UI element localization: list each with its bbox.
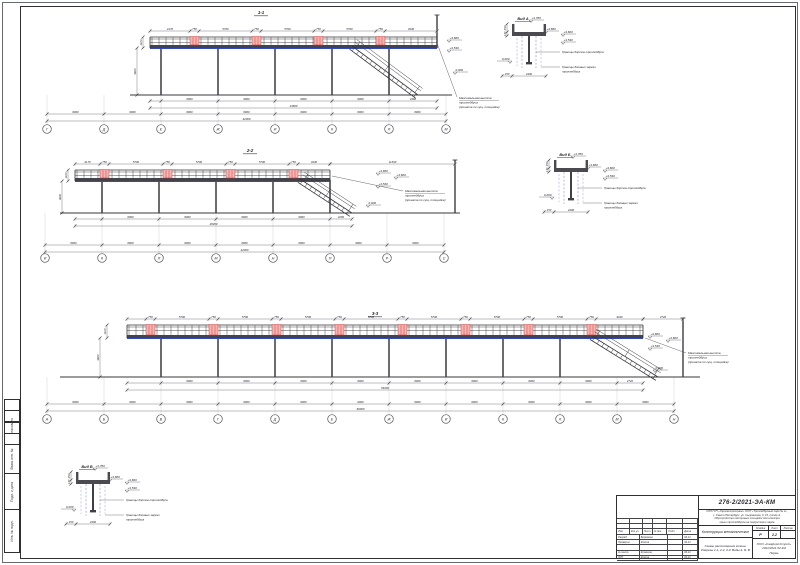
svg-text:1100: 1100 (64, 172, 68, 178)
svg-text:троллейбуса: троллейбуса (459, 100, 478, 104)
svg-text:6000: 6000 (300, 400, 307, 404)
strip-cell-2: Согласовано (4, 422, 20, 434)
svg-text:+3,680: +3,680 (450, 36, 460, 40)
svg-text:250: 250 (67, 473, 71, 479)
svg-text:750: 750 (291, 160, 296, 164)
sig-cell: ГИП (617, 556, 640, 561)
strip-cell-4: Взам. инв. № (4, 444, 20, 474)
svg-text:0,000: 0,000 (656, 366, 664, 370)
svg-text:11540: 11540 (389, 160, 397, 164)
svg-text:2400: 2400 (567, 208, 575, 212)
svg-text:4170: 4170 (167, 27, 174, 31)
svg-text:5700: 5700 (222, 27, 229, 31)
svg-text:+3,530: +3,530 (379, 182, 389, 186)
svg-text:С: С (443, 256, 446, 260)
strip-cell-6: Инв. № подл. (4, 509, 20, 553)
object-description: СПб ГУП «Горэлектротранс» ОСП «Троллейбу… (699, 509, 795, 526)
svg-text:+3,600: +3,600 (397, 173, 407, 177)
svg-text:6000: 6000 (243, 110, 250, 114)
svg-text:Границы боковых зеркал: Границы боковых зеркал (604, 201, 638, 205)
svg-text:6000: 6000 (184, 215, 191, 219)
svg-text:5700: 5700 (284, 27, 291, 31)
svg-text:Границы бортов троллейбуса: Границы бортов троллейбуса (126, 498, 168, 502)
svg-text:0,000: 0,000 (544, 193, 552, 197)
svg-text:6000: 6000 (357, 110, 364, 114)
svg-text:0,000: 0,000 (502, 57, 510, 61)
view-1-1: 4170750570075057007505700750344060006000… (43, 10, 500, 133)
detail-vid-b: Вид Б+4,780+3,680+3,600+3,5300,000Границ… (539, 152, 646, 214)
change-table-empty (617, 496, 698, 519)
svg-text:(принята по сущ. площадке): (принята по сущ. площадке) (688, 360, 729, 364)
svg-text:250: 250 (503, 25, 507, 31)
svg-text:Вид А: Вид А (517, 17, 528, 21)
svg-text:4360: 4360 (410, 97, 417, 101)
strip-label: Инв. № подл. (10, 521, 14, 542)
sheet-title: Схемы расположения колонн. Разрезы 1-1, … (699, 538, 753, 558)
svg-text:750: 750 (378, 27, 383, 31)
svg-text:+3,680: +3,680 (651, 332, 661, 336)
svg-text:М: М (215, 256, 218, 260)
svg-text:6000: 6000 (585, 379, 592, 383)
svg-text:3-3: 3-3 (372, 311, 379, 316)
svg-text:6000: 6000 (72, 110, 79, 114)
svg-text:Вид Б: Вид Б (559, 153, 570, 157)
svg-text:А: А (45, 417, 49, 421)
svg-text:6000: 6000 (355, 241, 362, 245)
svg-text:750: 750 (165, 160, 170, 164)
svg-text:6000: 6000 (127, 241, 134, 245)
svg-text:6000: 6000 (357, 379, 364, 383)
svg-text:Л: Л (157, 256, 161, 260)
svg-text:6000: 6000 (471, 400, 478, 404)
svg-text:5700: 5700 (494, 315, 501, 319)
svg-text:Вид В: Вид В (81, 465, 92, 469)
svg-text:+4,780: +4,780 (96, 464, 106, 468)
svg-text:6000: 6000 (243, 97, 250, 101)
svg-text:троллейбуса: троллейбуса (604, 206, 622, 210)
svg-text:750: 750 (254, 27, 259, 31)
svg-text:6000: 6000 (585, 400, 592, 404)
svg-text:М: М (616, 417, 619, 421)
svg-text:+3,680: +3,680 (379, 169, 389, 173)
svg-text:6000: 6000 (357, 400, 364, 404)
svg-text:Л: Л (558, 417, 562, 421)
title-block: Изм.Кол.уч.Лист№ док.Подп.ДатаРазраб.Бер… (616, 495, 796, 559)
svg-text:+3,530: +3,530 (564, 38, 574, 42)
svg-text:2400: 2400 (89, 520, 97, 524)
strip-label: Подп. и дата (10, 482, 14, 502)
sheets-total (781, 531, 795, 538)
stage-value: Р (753, 531, 769, 538)
svg-text:2720: 2720 (626, 379, 634, 383)
svg-text:(принята по сущ. площадке): (принята по сущ. площадке) (459, 105, 500, 109)
svg-text:троллейбуса: троллейбуса (562, 70, 580, 74)
svg-text:6000: 6000 (129, 110, 136, 114)
svg-text:5700: 5700 (431, 315, 438, 319)
svg-text:Л: Л (387, 127, 391, 131)
svg-text:6000: 6000 (186, 97, 193, 101)
svg-text:Границы бортов троллейбуса: Границы бортов троллейбуса (604, 186, 646, 190)
detail-vid-a: Вид А+4,780+3,680+3,600+3,5300,000Границ… (497, 16, 604, 78)
svg-text:5700: 5700 (557, 315, 564, 319)
svg-text:0,000: 0,000 (369, 201, 377, 205)
svg-text:6000: 6000 (298, 215, 305, 219)
strip-cell-3 (4, 433, 20, 445)
svg-text:750: 750 (274, 315, 279, 319)
svg-text:750: 750 (211, 315, 216, 319)
svg-text:0,000: 0,000 (456, 68, 464, 72)
svg-text:750: 750 (192, 27, 197, 31)
svg-text:+3,530: +3,530 (128, 486, 138, 490)
document-number: 276-2/2021-ЭА-КМ (699, 496, 795, 510)
svg-text:6000: 6000 (642, 400, 649, 404)
svg-text:150: 150 (505, 72, 510, 76)
svg-text:24600: 24600 (289, 104, 298, 108)
view-3-3: 7505700750570075057007505700750570075057… (43, 311, 729, 423)
svg-text:6000: 6000 (414, 400, 421, 404)
svg-text:170: 170 (67, 479, 71, 484)
svg-text:5700: 5700 (305, 315, 312, 319)
svg-text:И: И (445, 417, 448, 421)
strip-label: Взам. инв. № (10, 449, 14, 470)
svg-text:Д: Д (273, 417, 277, 421)
svg-text:750: 750 (463, 315, 468, 319)
svg-text:И: И (274, 127, 277, 131)
svg-text:+3,600: +3,600 (128, 478, 138, 482)
section-title: Конструкции металлические (699, 526, 753, 538)
svg-text:+3,600: +3,600 (606, 166, 616, 170)
svg-text:66000: 66000 (357, 407, 365, 411)
svg-text:6000: 6000 (129, 400, 136, 404)
svg-text:троллейбуса: троллейбуса (688, 355, 707, 359)
svg-text:+3,680: +3,680 (111, 475, 121, 479)
svg-text:М: М (445, 127, 448, 131)
svg-text:750: 750 (102, 160, 107, 164)
svg-text:42000: 42000 (243, 117, 251, 121)
svg-text:6000: 6000 (241, 241, 248, 245)
detail-vid-v: Вид В+4,780+3,680+3,600+3,5300,000Границ… (61, 464, 168, 526)
object-line: крыш троллейбусов на территории парка (699, 521, 795, 525)
svg-text:Границы боковых зеркал: Границы боковых зеркал (126, 513, 160, 517)
svg-text:троллейбуса: троллейбуса (405, 193, 424, 197)
svg-text:3600: 3600 (133, 68, 137, 75)
svg-text:Н: Н (673, 417, 676, 421)
svg-text:6000: 6000 (414, 379, 421, 383)
svg-text:Границы бортов троллейбуса: Границы бортов троллейбуса (562, 50, 604, 54)
svg-text:6000: 6000 (300, 97, 307, 101)
svg-text:2260: 2260 (337, 215, 345, 219)
svg-text:6000: 6000 (298, 241, 305, 245)
svg-text:(принята по сущ. площадке): (принята по сущ. площадке) (405, 198, 446, 202)
svg-text:+3,530: +3,530 (651, 344, 661, 348)
svg-text:П: П (329, 256, 332, 260)
svg-text:Н: Н (272, 256, 275, 260)
svg-text:6000: 6000 (243, 379, 250, 383)
svg-text:И: И (44, 256, 47, 260)
svg-text:+4,780: +4,780 (574, 152, 584, 156)
svg-text:750: 750 (228, 160, 233, 164)
svg-text:2-2: 2-2 (246, 148, 254, 153)
svg-text:4170: 4170 (84, 160, 91, 164)
svg-text:6000: 6000 (412, 241, 419, 245)
svg-text:6000: 6000 (300, 110, 307, 114)
svg-text:Максимальная высота: Максимальная высота (405, 189, 438, 193)
svg-text:6000: 6000 (300, 379, 307, 383)
svg-text:150: 150 (547, 208, 552, 212)
sig-cell: Козлов (640, 556, 669, 561)
company-cell: ООО «КомфортСтрой»2021/2021-52-4МПермь (753, 539, 795, 558)
frame-side-strip: СогласованоВзам. инв. №Подп. и датаИнв. … (4, 400, 20, 553)
svg-text:750: 750 (400, 315, 405, 319)
sig-cell (668, 556, 683, 561)
drawing-sheet: 4170750570075057007505700750344060006000… (0, 0, 800, 565)
svg-text:6000: 6000 (70, 241, 77, 245)
svg-text:5700: 5700 (179, 315, 186, 319)
svg-text:Границы боковых зеркал: Границы боковых зеркал (562, 65, 596, 69)
svg-text:6000: 6000 (357, 97, 364, 101)
svg-text:6000: 6000 (186, 379, 193, 383)
svg-text:Ж: Ж (215, 127, 220, 131)
sheet-number: 2.2 (769, 531, 781, 538)
svg-text:5700: 5700 (196, 160, 203, 164)
svg-text:6000: 6000 (186, 400, 193, 404)
svg-text:170: 170 (545, 167, 549, 172)
svg-text:3440: 3440 (616, 315, 623, 319)
svg-text:6000: 6000 (72, 400, 79, 404)
svg-text:1100: 1100 (139, 39, 143, 45)
svg-text:+3,680: +3,680 (547, 27, 557, 31)
company-line: Пермь (769, 551, 778, 555)
sig-cell: 04.21 (683, 556, 698, 561)
svg-text:150: 150 (69, 520, 74, 524)
svg-text:750: 750 (526, 315, 531, 319)
svg-text:+3,530: +3,530 (606, 174, 616, 178)
svg-text:750: 750 (337, 315, 342, 319)
svg-text:+3,600: +3,600 (564, 30, 574, 34)
svg-text:3600: 3600 (96, 354, 100, 361)
svg-text:троллейбуса: троллейбуса (126, 518, 144, 522)
svg-text:6000: 6000 (127, 215, 134, 219)
svg-text:3440: 3440 (311, 160, 318, 164)
svg-text:2400: 2400 (525, 72, 533, 76)
svg-text:+3,600: +3,600 (669, 336, 679, 340)
svg-text:Ж: Ж (386, 417, 391, 421)
svg-text:170: 170 (503, 31, 507, 36)
svg-text:750: 750 (589, 315, 594, 319)
svg-text:1-1: 1-1 (258, 10, 265, 15)
svg-text:6000: 6000 (471, 379, 478, 383)
svg-text:3440: 3440 (408, 27, 415, 31)
svg-text:1100: 1100 (103, 328, 107, 334)
svg-text:0,000: 0,000 (66, 505, 74, 509)
svg-text:+4,780: +4,780 (532, 16, 542, 20)
svg-text:Д: Д (102, 127, 106, 131)
svg-text:6000: 6000 (184, 241, 191, 245)
svg-text:6000: 6000 (243, 400, 250, 404)
drawing-canvas: 4170750570075057007505700750344060006000… (0, 0, 800, 565)
svg-text:Максимальная высота: Максимальная высота (459, 96, 492, 100)
stage-sheet-table: Стадия Лист Листов Р 2.2 (753, 526, 795, 539)
svg-text:5700: 5700 (242, 315, 249, 319)
svg-text:+3,680: +3,680 (589, 163, 599, 167)
svg-text:+3,530: +3,530 (450, 46, 460, 50)
sheet-title-line2: Разрезы 1-1, 2-2, 3-3. Виды А, Б, В (701, 548, 749, 552)
svg-text:750: 750 (316, 27, 321, 31)
svg-text:28260: 28260 (209, 222, 218, 226)
strip-cell-5: Подп. и дата (4, 473, 20, 510)
svg-text:2720: 2720 (659, 315, 667, 319)
svg-text:5700: 5700 (346, 27, 353, 31)
svg-text:6000: 6000 (241, 215, 248, 219)
svg-text:6000: 6000 (414, 110, 421, 114)
view-2-2: 4170750570075057007505700750344011540600… (41, 148, 460, 262)
svg-text:6000: 6000 (528, 400, 535, 404)
svg-text:5700: 5700 (259, 160, 266, 164)
svg-text:42000: 42000 (241, 248, 249, 252)
svg-text:5700: 5700 (133, 160, 140, 164)
svg-text:Максимальная высота: Максимальная высота (688, 351, 721, 355)
signature-table: Изм.Кол.уч.Лист№ док.Подп.ДатаРазраб.Бер… (617, 496, 699, 558)
svg-text:250: 250 (545, 161, 549, 167)
svg-text:750: 750 (148, 315, 153, 319)
svg-text:6000: 6000 (528, 379, 535, 383)
svg-text:54000: 54000 (381, 386, 389, 390)
svg-text:3600: 3600 (58, 193, 62, 200)
strip-cell-0 (4, 399, 20, 411)
svg-text:6000: 6000 (186, 110, 193, 114)
